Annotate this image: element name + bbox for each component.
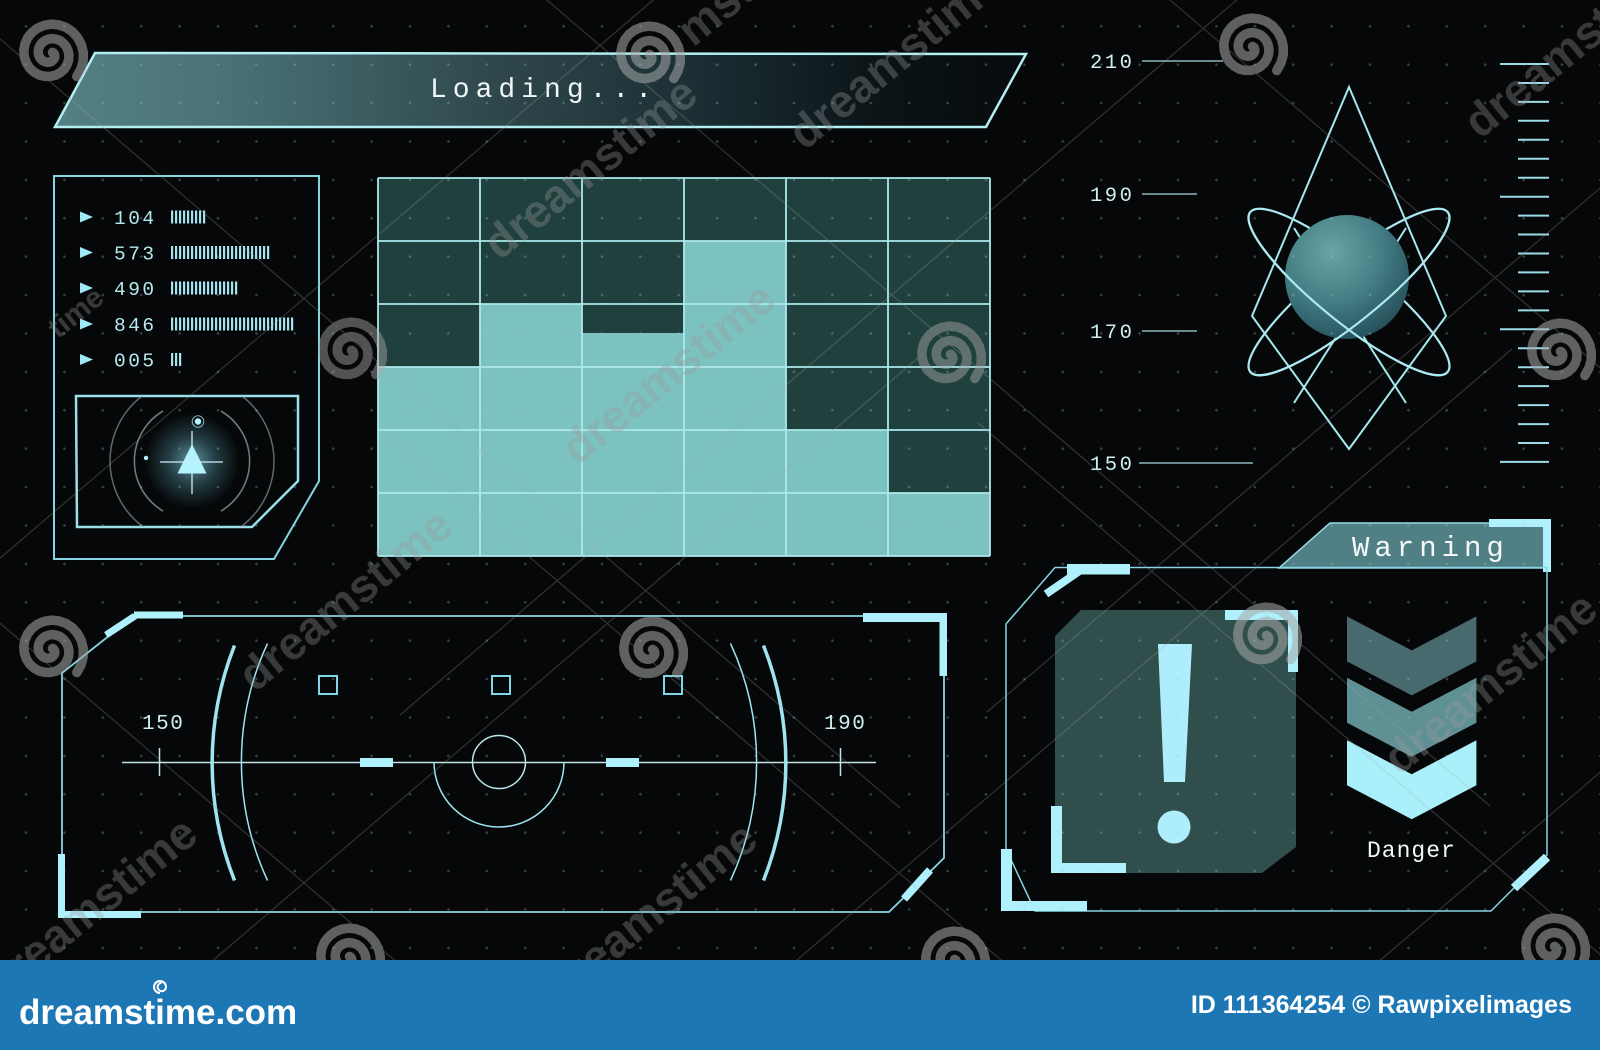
svg-text:ID 111364254 © Rawpixelimages: ID 111364254 © Rawpixelimages: [1191, 991, 1572, 1019]
svg-text:dreamstime.com: dreamstime.com: [19, 993, 297, 1032]
